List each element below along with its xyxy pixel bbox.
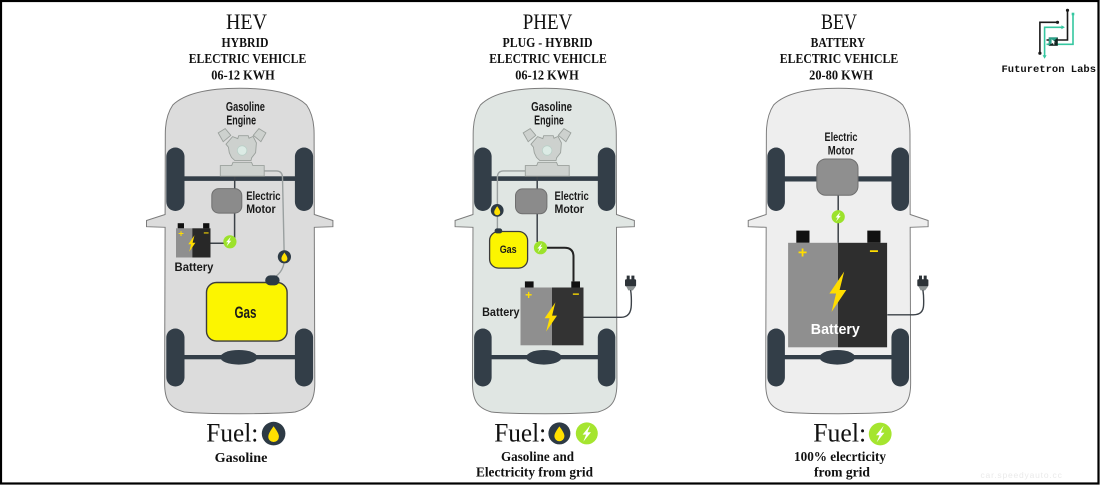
svg-text:20-80 KWH: 20-80 KWH [809,69,873,84]
svg-text:Motor: Motor [246,204,276,216]
svg-text:−: − [572,287,579,301]
svg-text:ELECTRIC VEHICLE: ELECTRIC VEHICLE [189,52,307,67]
svg-text:06-12 KWH: 06-12 KWH [211,69,275,84]
svg-text:100% elecrticity: 100% elecrticity [794,449,886,464]
svg-text:Motor: Motor [828,146,855,158]
svg-text:−: − [869,244,878,261]
svg-text:−: − [203,228,209,239]
svg-text:BATTERY: BATTERY [811,36,866,51]
svg-text:+: + [178,229,184,240]
svg-text:Futuretron Labs: Futuretron Labs [1002,64,1097,76]
svg-text:from grid: from grid [814,465,870,480]
svg-text:Electric: Electric [825,132,858,144]
svg-text:Gasoline: Gasoline [215,451,268,466]
svg-text:Engine: Engine [226,112,256,127]
svg-text:+: + [525,288,532,302]
svg-text:Battery: Battery [811,321,861,338]
svg-text:Gas: Gas [235,304,257,322]
svg-text:BEV: BEV [821,9,857,34]
svg-text:06-12 KWH: 06-12 KWH [515,69,579,84]
svg-text:car.speedyauto.cc: car.speedyauto.cc [981,470,1063,480]
svg-text:Battery: Battery [482,305,520,319]
svg-text:HEV: HEV [226,9,267,34]
svg-text:ELECTRIC VEHICLE: ELECTRIC VEHICLE [780,52,898,67]
svg-text:+: + [798,245,807,262]
svg-text:Engine: Engine [534,112,564,127]
svg-text:Electric: Electric [246,191,281,203]
svg-text:Fuel:: Fuel: [494,418,546,448]
svg-text:ELECTRIC VEHICLE: ELECTRIC VEHICLE [489,52,607,67]
svg-text:Electricity from grid: Electricity from grid [476,465,593,480]
svg-text:PLUG - HYBRID: PLUG - HYBRID [503,36,593,51]
svg-text:Gasoline and: Gasoline and [501,449,574,464]
svg-text:Fuel:: Fuel: [206,418,258,448]
svg-text:Electric: Electric [555,191,590,203]
svg-text:Fuel:: Fuel: [813,418,866,448]
svg-text:Motor: Motor [555,204,585,216]
svg-text:HYBRID: HYBRID [222,36,269,51]
svg-text:PHEV: PHEV [523,9,573,34]
svg-text:Battery: Battery [175,262,214,274]
svg-text:Gas: Gas [500,244,517,256]
